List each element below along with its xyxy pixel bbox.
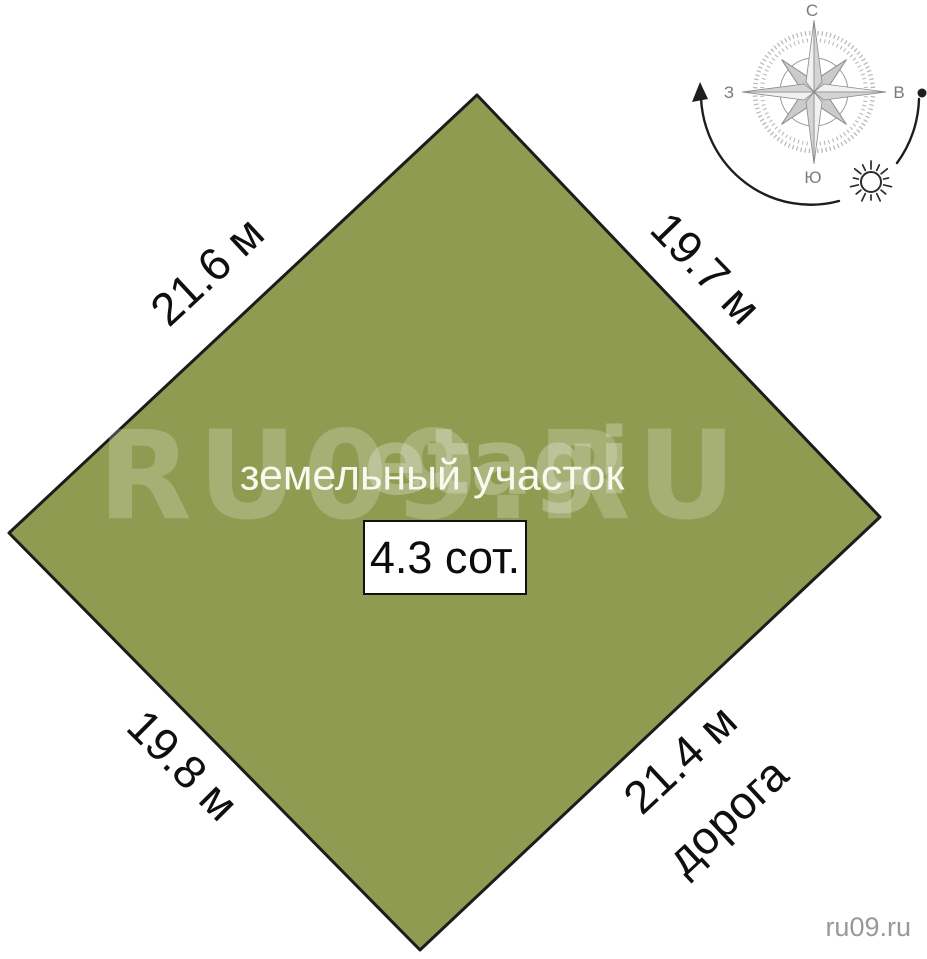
plot-title: земельный участок xyxy=(240,452,625,501)
area-box: 4.3 сот. xyxy=(363,520,527,595)
area-value: 4.3 сот. xyxy=(370,532,520,584)
site-credit: ru09.ru xyxy=(825,912,911,943)
land-plot-scheme: RU09.RU etagi земельный участок 4.3 сот.… xyxy=(0,0,927,959)
